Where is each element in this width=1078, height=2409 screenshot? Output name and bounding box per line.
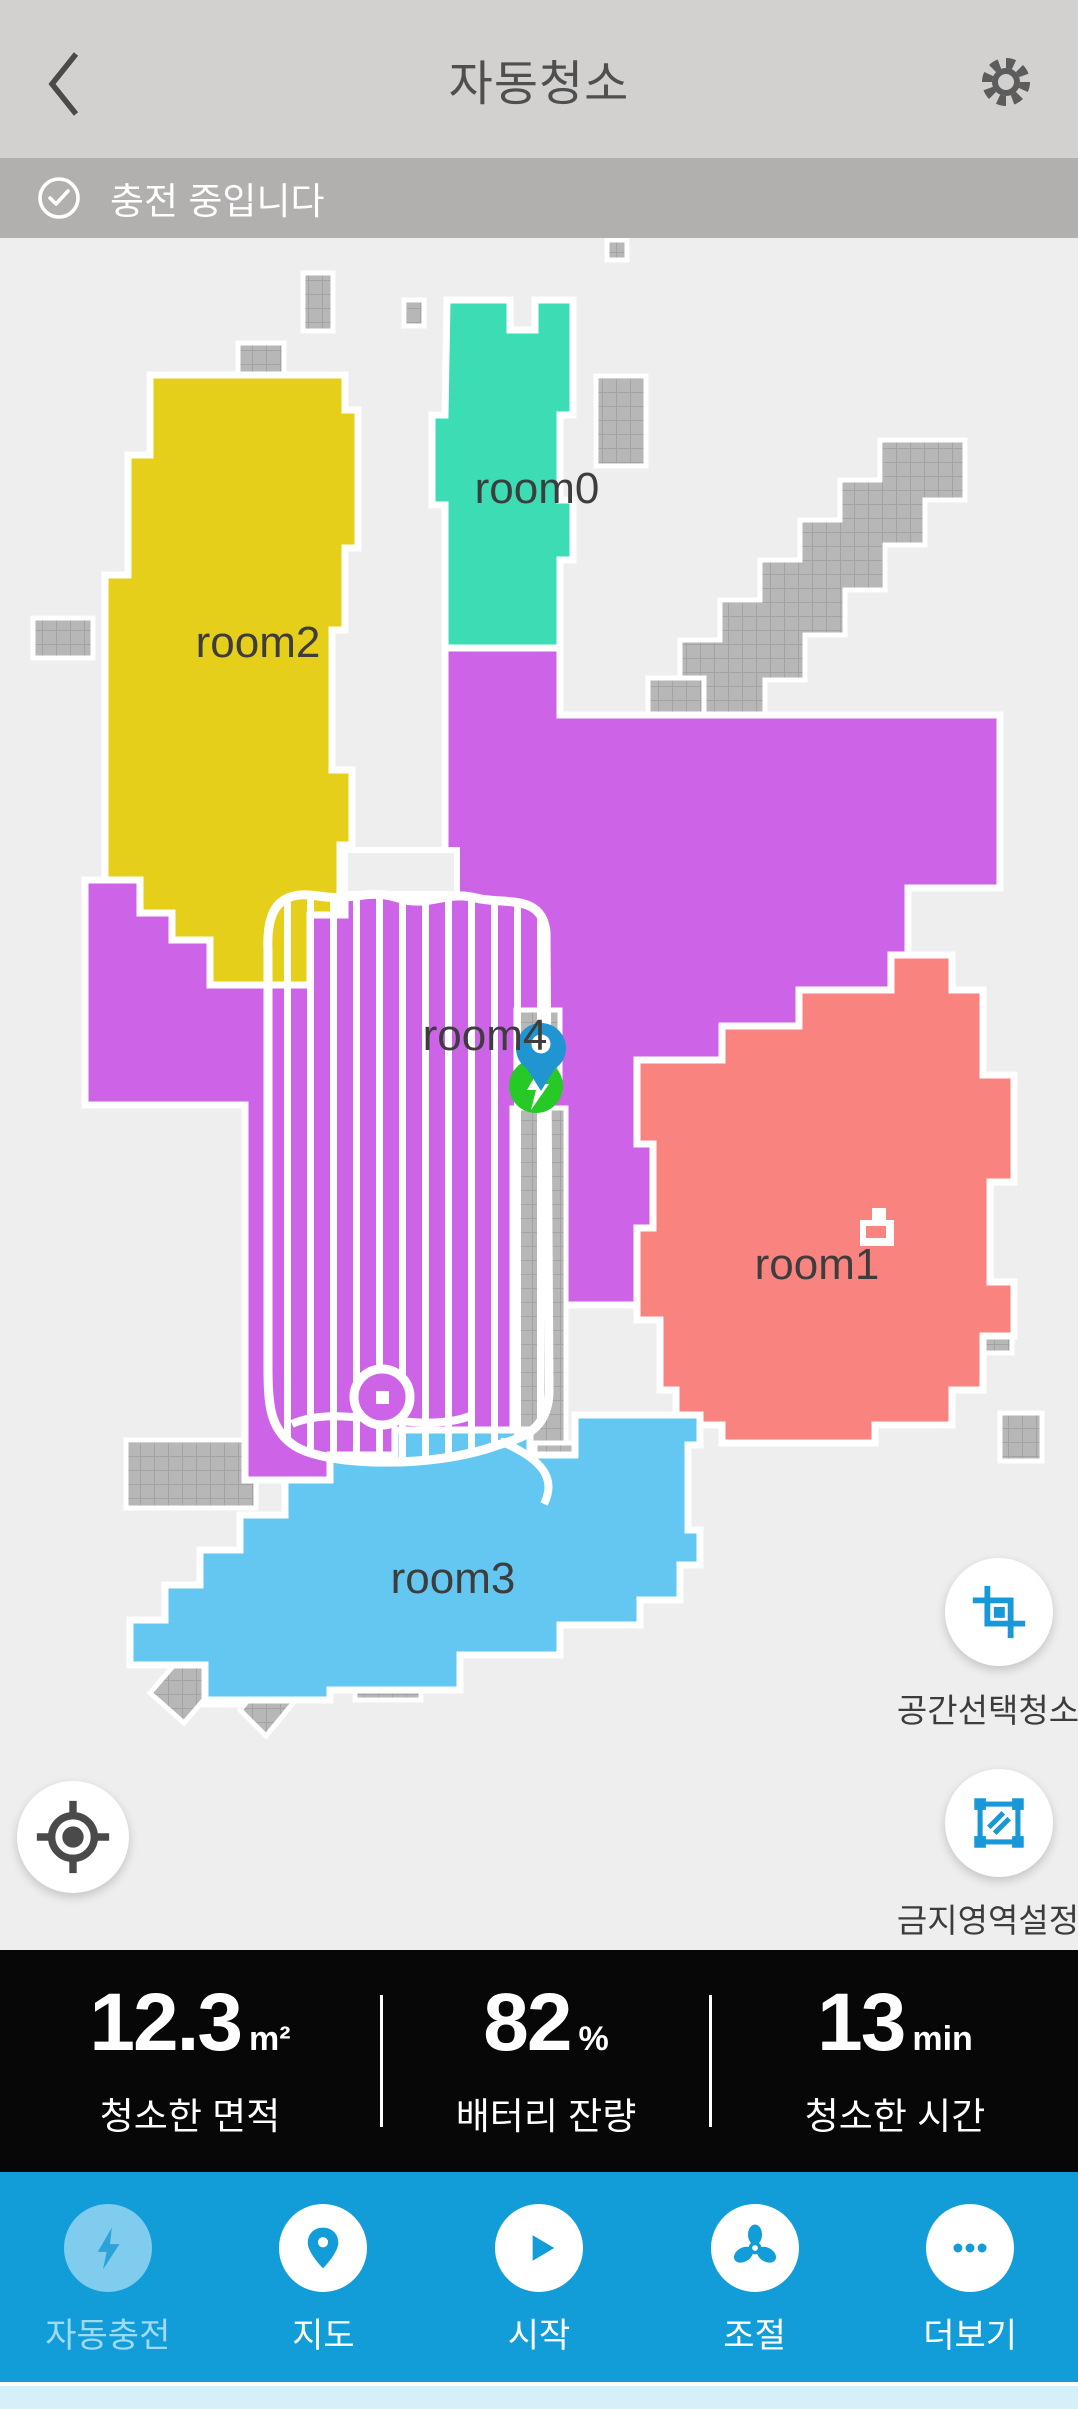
room1-label: room1: [755, 1240, 880, 1289]
stats-bar: 12.3 m² 청소한 면적 82 % 배터리 잔량 13 min 청소한 시간: [0, 1950, 1078, 2172]
nav-item-fan[interactable]: 조절: [647, 2172, 863, 2382]
robot-vacuum-app-screen: 자동청소 충전 중입니다: [0, 0, 1078, 2409]
nav-item-more[interactable]: 더보기: [862, 2172, 1078, 2382]
page-title: 자동청소: [449, 44, 630, 114]
room0-label: room0: [475, 464, 600, 513]
fan-icon: [727, 2220, 783, 2276]
clean-time-label: 청소한 시간: [805, 2086, 985, 2140]
stat-cleaned-area: 12.3 m² 청소한 면적: [0, 1982, 380, 2140]
battery-unit: %: [578, 2020, 608, 2059]
more-icon: [942, 2220, 998, 2276]
bottom-nav: 자동충전 지도 시작: [0, 2172, 1078, 2382]
map-pin-icon: [295, 2220, 351, 2276]
no-go-zone-label: 금지영역설정: [897, 1894, 1078, 1942]
play-icon: [511, 2220, 567, 2276]
nav-item-start[interactable]: 시작: [431, 2172, 647, 2382]
header: 자동청소: [0, 0, 1078, 158]
auto-charge-circle: [64, 2204, 152, 2292]
battery-value: 82: [483, 1982, 570, 2064]
cleaned-area-label: 청소한 면적: [100, 2086, 280, 2140]
check-circle-icon: [36, 175, 82, 221]
cleaned-area-unit: m²: [249, 2020, 291, 2059]
cleaned-area-value: 12.3: [89, 1982, 241, 2064]
nav-label-start: 시작: [508, 2308, 571, 2357]
stat-battery: 82 % 배터리 잔량: [383, 1982, 709, 2140]
nav-label-more: 더보기: [923, 2308, 1017, 2357]
room3-label: room3: [391, 1554, 516, 1603]
more-circle: [926, 2204, 1014, 2292]
back-button[interactable]: [28, 42, 100, 126]
locate-target-icon: [27, 1791, 119, 1883]
clean-time-value: 13: [817, 1982, 904, 2064]
nav-label-fan: 조절: [723, 2308, 786, 2357]
area-select-clean-label: 공간선택청소: [897, 1684, 1078, 1732]
nav-item-map[interactable]: 지도: [216, 2172, 432, 2382]
gear-icon: [975, 51, 1037, 113]
locate-robot-button[interactable]: [17, 1781, 129, 1893]
room4-label: room4: [423, 1011, 548, 1060]
back-chevron-icon: [40, 42, 88, 126]
bolt-icon: [80, 2220, 136, 2276]
no-go-zone-icon: [967, 1791, 1031, 1855]
nav-item-auto-charge[interactable]: 자동충전: [0, 2172, 216, 2382]
map-bg-notch: [345, 850, 457, 894]
fan-circle: [711, 2204, 799, 2292]
battery-label: 배터리 잔량: [456, 2086, 636, 2140]
no-go-zone-button[interactable]: [945, 1769, 1053, 1877]
nav-label-map: 지도: [292, 2308, 355, 2357]
status-message: 충전 중입니다: [110, 171, 325, 225]
room2-label: room2: [196, 618, 321, 667]
cleaning-path: [268, 894, 549, 1504]
start-circle: [495, 2204, 583, 2292]
stat-clean-time: 13 min 청소한 시간: [712, 1982, 1078, 2140]
clean-time-unit: min: [912, 2020, 972, 2059]
area-select-clean-button[interactable]: [945, 1558, 1053, 1666]
crop-area-icon: [967, 1580, 1031, 1644]
settings-button[interactable]: [970, 40, 1042, 124]
map-circle: [279, 2204, 367, 2292]
status-bar: 충전 중입니다: [0, 158, 1078, 238]
bottom-strip: [0, 2382, 1078, 2409]
nav-label-auto-charge: 자동충전: [45, 2308, 170, 2357]
